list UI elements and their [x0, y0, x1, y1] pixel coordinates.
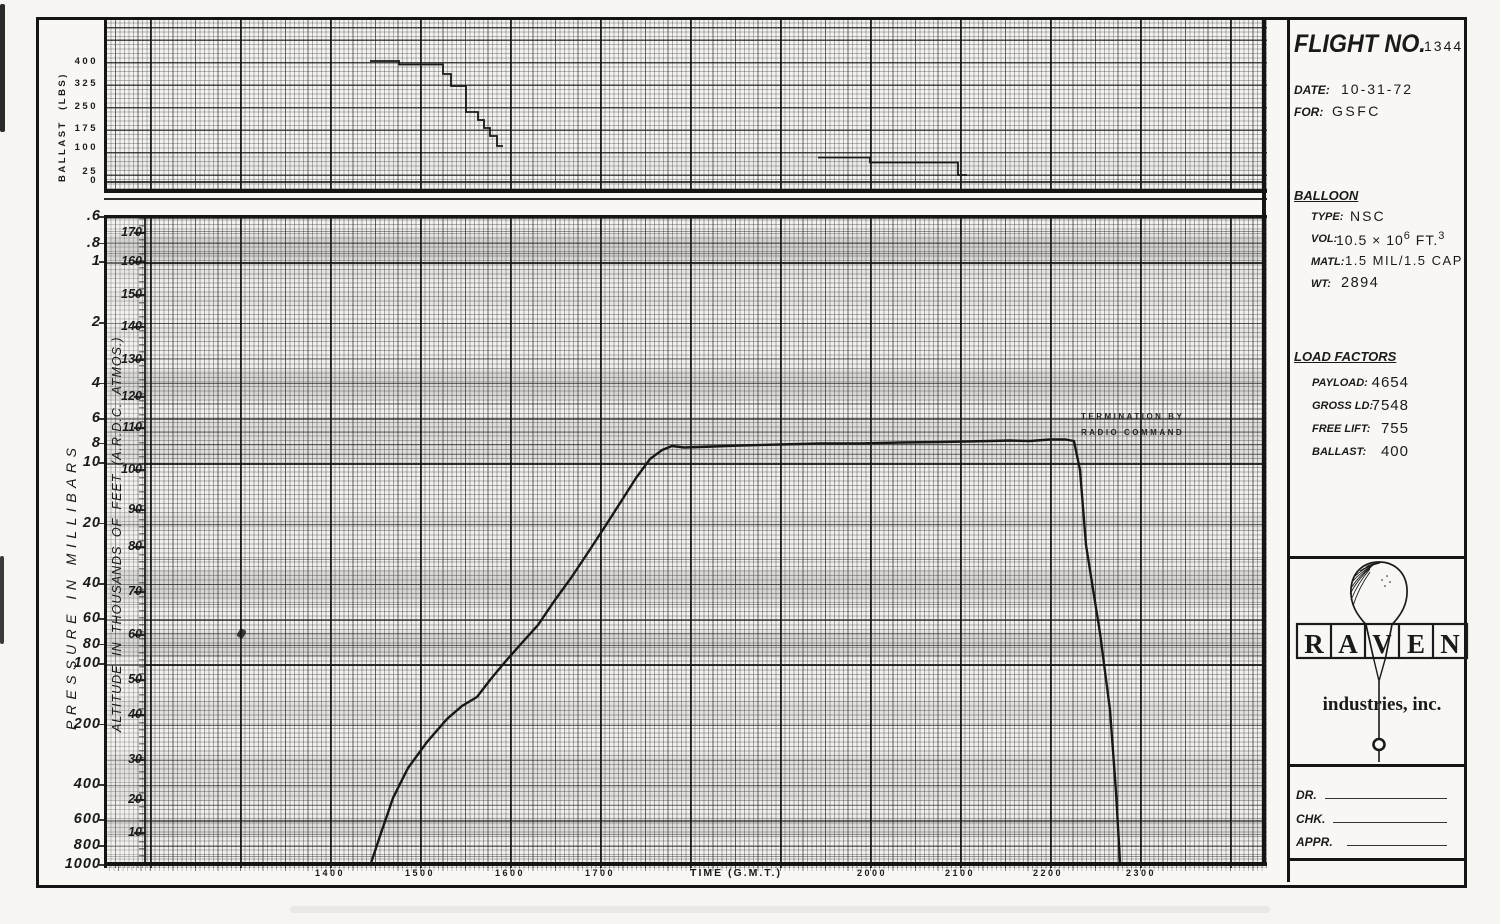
svg-text:industries, inc.: industries, inc. [1323, 694, 1442, 715]
svg-text:A: A [1338, 629, 1358, 659]
svg-text:N: N [1440, 629, 1460, 659]
svg-text:E: E [1407, 629, 1425, 659]
svg-text:V: V [1372, 629, 1392, 659]
svg-text:R: R [1304, 629, 1324, 659]
